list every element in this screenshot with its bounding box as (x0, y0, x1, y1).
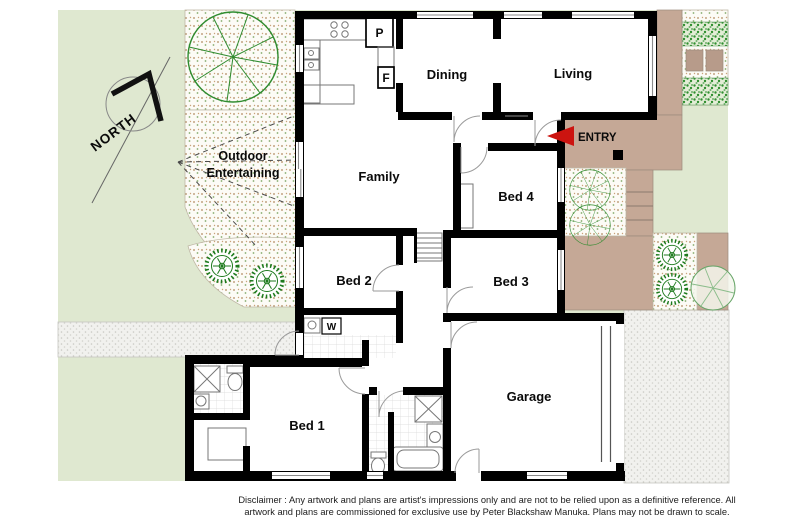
room-label-bed2: Bed 2 (336, 273, 371, 288)
garden-bed-northeast (682, 10, 728, 105)
disclaimer-line1: Disclaimer : Any artwork and plans are a… (238, 495, 735, 505)
pantry-label: P (375, 26, 383, 40)
side-path (58, 322, 296, 357)
outdoor-label-line2: Entertaining (207, 166, 280, 180)
bathroom (369, 395, 443, 474)
ensuite (193, 364, 243, 413)
tree-outline (691, 266, 735, 310)
shrub (207, 251, 238, 282)
driveway (624, 310, 729, 483)
room-label-bed1: Bed 1 (289, 418, 324, 433)
room-label-bed3: Bed 3 (493, 274, 528, 289)
room-label-bed4: Bed 4 (498, 189, 534, 204)
outdoor-label-line1: Outdoor (218, 149, 267, 163)
shrub (658, 241, 687, 270)
room-label-dining: Dining (427, 67, 467, 82)
washer-label: W (327, 322, 337, 333)
disclaimer: Disclaimer : Any artwork and plans are a… (238, 495, 735, 517)
porch-post (613, 150, 623, 160)
fridge-label: F (382, 71, 389, 85)
shrub (252, 266, 283, 297)
floor-plan: Dining Living Family Bed 4 Bed 2 Bed 3 B… (0, 0, 790, 527)
entry-label: ENTRY (578, 132, 617, 144)
room-label-family: Family (358, 169, 400, 184)
room-label-garage: Garage (507, 389, 552, 404)
floor-plan-svg: Dining Living Family Bed 4 Bed 2 Bed 3 B… (0, 0, 790, 527)
disclaimer-line2: artwork and plans are commissioned for e… (244, 507, 729, 517)
room-label-living: Living (554, 66, 592, 81)
shrub (658, 275, 687, 304)
